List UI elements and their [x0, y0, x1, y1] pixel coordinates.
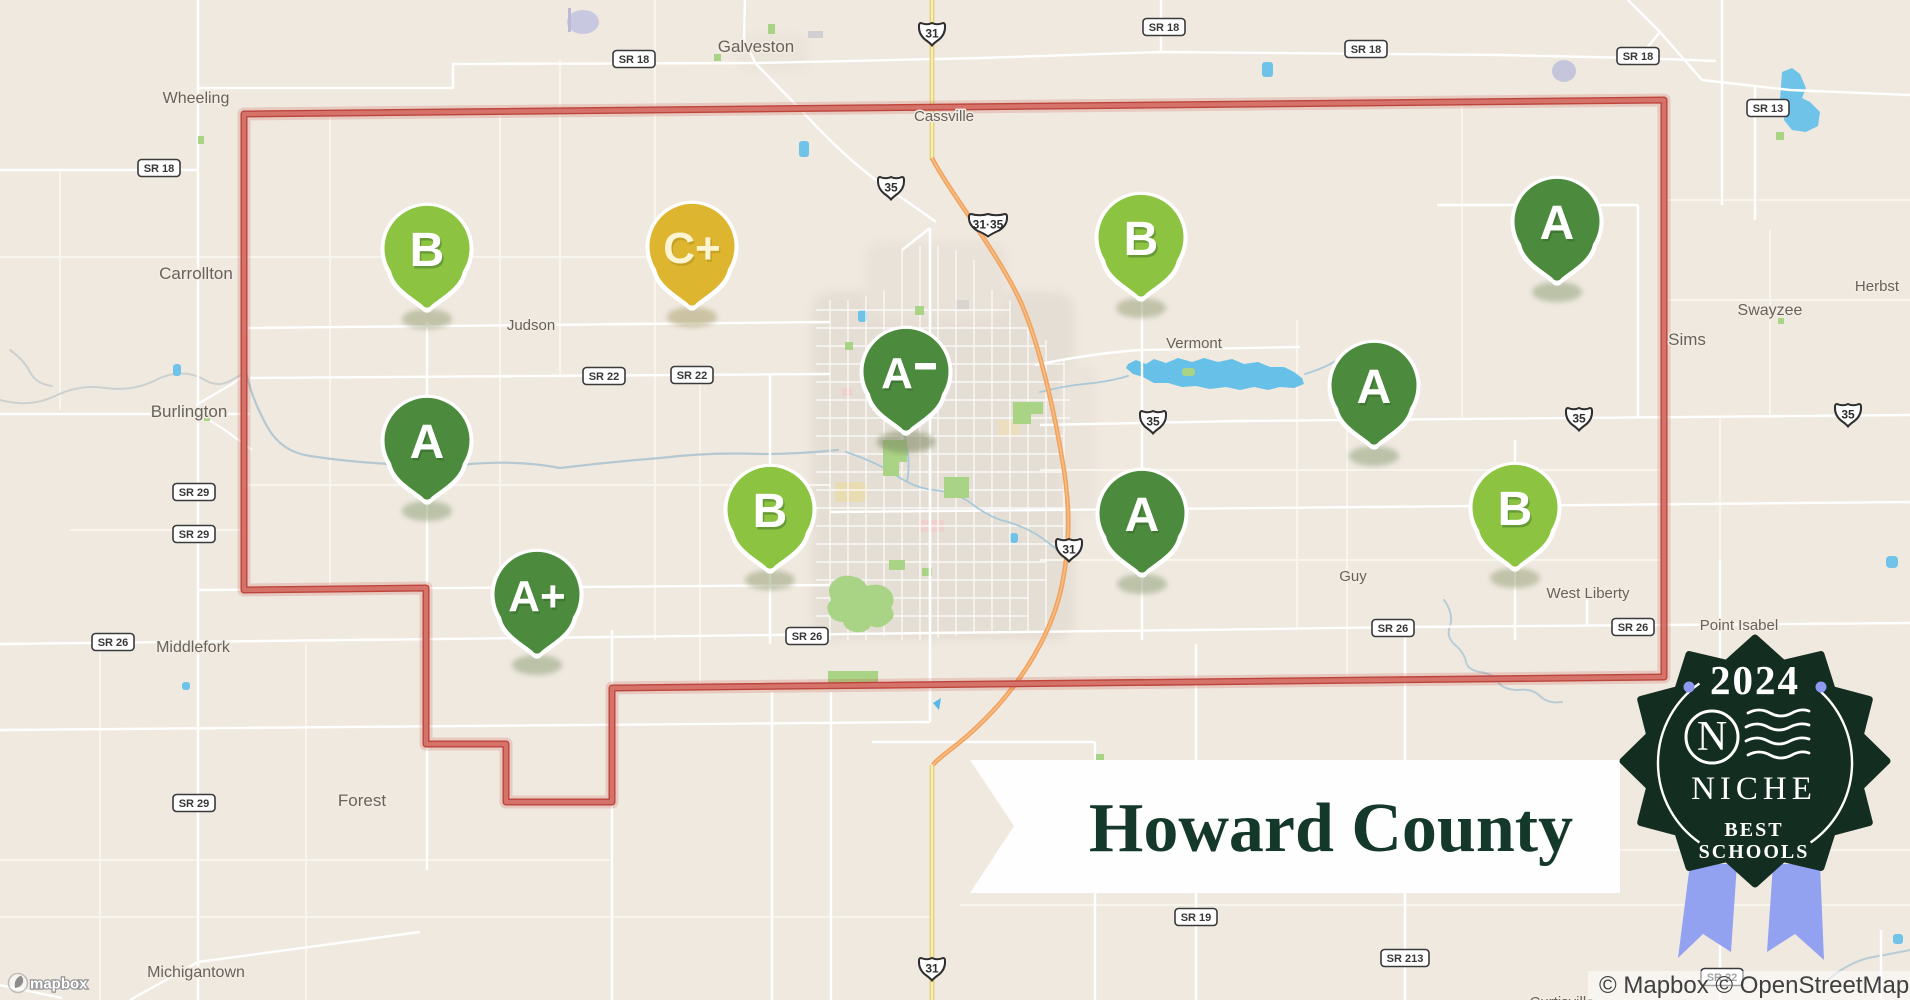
svg-text:B: B — [410, 224, 445, 277]
svg-text:Middlefork: Middlefork — [156, 639, 231, 656]
svg-text:35: 35 — [1841, 408, 1855, 422]
svg-text:mapbox: mapbox — [30, 976, 88, 993]
svg-text:31: 31 — [1062, 543, 1076, 557]
svg-text:SR 213: SR 213 — [1387, 953, 1424, 965]
svg-text:Guy: Guy — [1339, 568, 1367, 585]
svg-text:SR 29: SR 29 — [179, 529, 210, 541]
svg-text:Vermont: Vermont — [1166, 335, 1223, 352]
svg-text:Burlington: Burlington — [151, 402, 228, 421]
svg-text:SR 18: SR 18 — [619, 54, 650, 66]
svg-text:SR 29: SR 29 — [179, 487, 210, 499]
svg-text:Michigantown: Michigantown — [147, 964, 245, 981]
svg-text:Sims: Sims — [1668, 330, 1706, 349]
svg-text:Cassville: Cassville — [914, 108, 974, 125]
svg-text:SR 29: SR 29 — [179, 798, 210, 810]
svg-text:Galveston: Galveston — [718, 37, 795, 56]
svg-text:Swayzee: Swayzee — [1738, 302, 1803, 319]
svg-text:SR 26: SR 26 — [1378, 623, 1409, 635]
svg-text:SR 13: SR 13 — [1753, 103, 1784, 115]
svg-text:B: B — [1124, 213, 1159, 266]
svg-text:A+: A+ — [508, 572, 565, 621]
svg-text:Howard County: Howard County — [1089, 790, 1573, 867]
svg-text:SR 19: SR 19 — [1181, 912, 1212, 924]
svg-text:Herbst: Herbst — [1855, 278, 1900, 295]
svg-text:31: 31 — [925, 27, 939, 41]
svg-text:31: 31 — [925, 962, 939, 976]
svg-text:N: N — [1697, 714, 1727, 760]
svg-text:35: 35 — [1572, 412, 1586, 426]
svg-text:SR 22: SR 22 — [589, 371, 620, 383]
svg-text:Wheeling: Wheeling — [163, 90, 230, 107]
svg-text:NICHE: NICHE — [1691, 771, 1817, 807]
svg-text:A: A — [1357, 361, 1392, 414]
svg-text:A: A — [410, 416, 445, 469]
svg-text:A: A — [881, 349, 913, 398]
svg-text:SR 22: SR 22 — [677, 370, 708, 382]
svg-text:Curtisville: Curtisville — [1529, 994, 1594, 1000]
svg-text:31·35: 31·35 — [973, 218, 1004, 232]
svg-text:Forest: Forest — [338, 791, 386, 810]
svg-text:SR 18: SR 18 — [144, 163, 175, 175]
svg-text:Carrollton: Carrollton — [159, 264, 233, 283]
svg-text:Point Isabel: Point Isabel — [1700, 617, 1778, 634]
svg-text:35: 35 — [884, 181, 898, 195]
svg-text:C+: C+ — [663, 224, 720, 273]
svg-text:SR 26: SR 26 — [1618, 622, 1649, 634]
svg-text:© Mapbox © OpenStreetMap: © Mapbox © OpenStreetMap — [1599, 972, 1909, 999]
svg-text:35: 35 — [1146, 415, 1160, 429]
svg-text:SR 18: SR 18 — [1351, 44, 1382, 56]
svg-text:SR 18: SR 18 — [1623, 51, 1654, 63]
svg-text:2024: 2024 — [1710, 657, 1800, 703]
svg-text:West Liberty: West Liberty — [1546, 585, 1630, 602]
svg-text:B: B — [753, 485, 788, 538]
svg-text:A: A — [1540, 197, 1575, 250]
svg-text:A: A — [1125, 489, 1160, 542]
svg-text:BEST: BEST — [1724, 819, 1783, 841]
svg-text:SR 26: SR 26 — [792, 631, 823, 643]
svg-text:SR 26: SR 26 — [98, 637, 129, 649]
svg-text:SCHOOLS: SCHOOLS — [1699, 841, 1810, 863]
svg-text:B: B — [1498, 483, 1533, 536]
svg-text:Judson: Judson — [507, 317, 555, 334]
svg-text:SR 18: SR 18 — [1149, 22, 1180, 34]
